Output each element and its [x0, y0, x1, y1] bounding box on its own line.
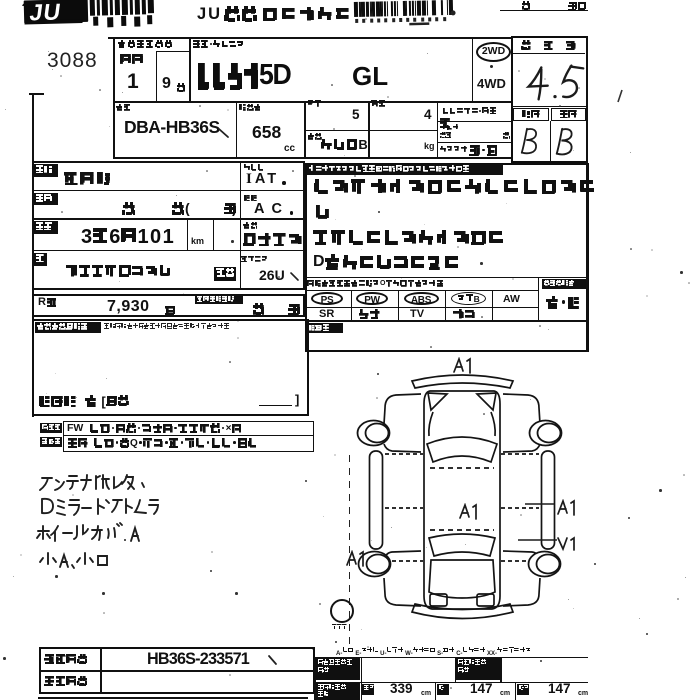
svg-text:JU: JU — [28, 0, 63, 25]
